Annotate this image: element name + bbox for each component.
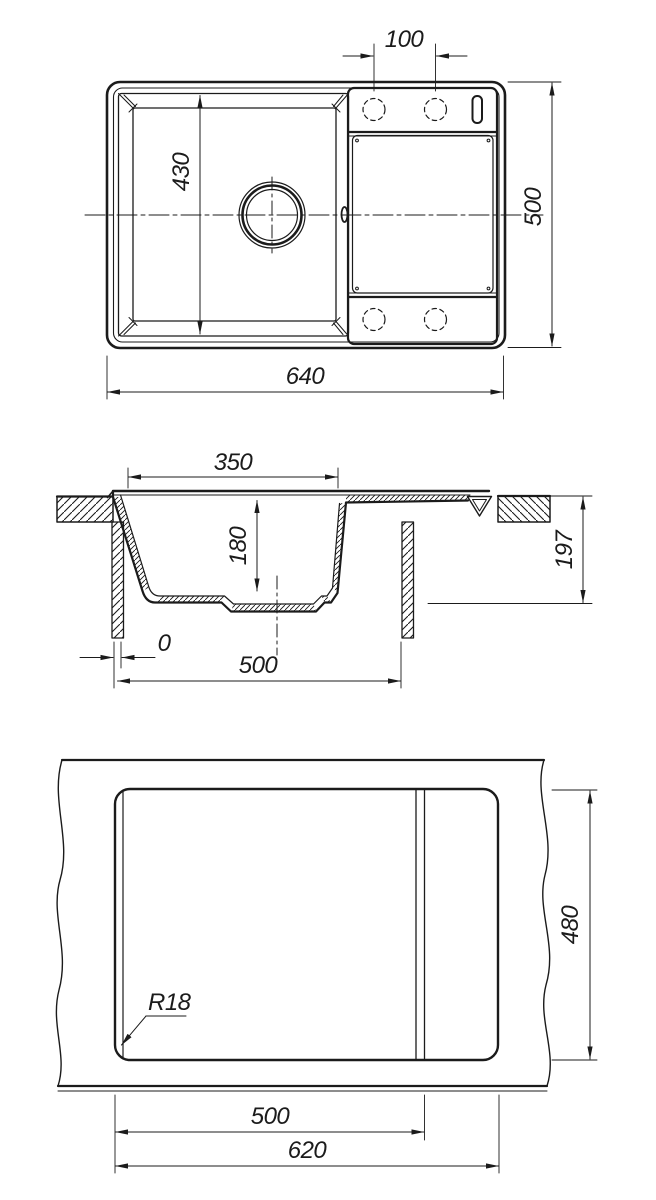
dim-tap-spacing: 100 — [343, 26, 467, 56]
panel-corner-dot — [356, 287, 359, 290]
dim-cutout-width-total-label: 620 — [288, 1137, 328, 1164]
technical-drawing-page: 100 430 500 640 — [0, 0, 656, 1200]
dim-cutout-height: 480 — [552, 790, 597, 1060]
panel-outline — [348, 88, 497, 344]
leader-r18: R18 — [122, 989, 192, 1045]
cabinet-wall-right — [402, 522, 414, 638]
top-view: 100 430 500 640 — [85, 26, 561, 399]
faucet-hole — [425, 99, 447, 121]
drainboard-panel — [348, 88, 497, 344]
faucet-hole — [363, 99, 385, 121]
break-line-right — [541, 760, 550, 1086]
accessory-hole — [425, 309, 447, 331]
slot-hole — [473, 96, 483, 123]
sink-material-hatch — [113, 495, 470, 612]
cutout-view: R18 480 500 620 — [56, 760, 597, 1173]
countertop-left — [57, 497, 113, 523]
countertop-right — [498, 496, 550, 522]
dim-edge-offset-label: 0 — [158, 630, 172, 657]
bowl-outer-surface — [113, 492, 468, 612]
technical-drawing: 100 430 500 640 — [0, 0, 656, 1200]
dim-bowl-depth: 180 — [225, 501, 257, 592]
dim-bowl-opening: 350 — [128, 449, 338, 488]
sink-section-profile — [108, 491, 492, 612]
countertop-panel — [56, 760, 550, 1091]
panel-corner-dot — [356, 139, 359, 142]
dim-overall-height-label: 197 — [551, 529, 578, 570]
cutout-outline — [115, 789, 498, 1060]
dim-bowl-opening-label: 350 — [214, 449, 254, 476]
panel-corner-dot — [487, 139, 490, 142]
dim-edge-offset: 0 — [80, 630, 172, 688]
corner-radius-label: R18 — [148, 989, 192, 1016]
dim-cabinet-width-label: 500 — [239, 652, 279, 679]
dim-overall-depth-label: 500 — [520, 187, 547, 227]
dim-overall-length-label: 640 — [286, 363, 326, 390]
dim-cutout-widths: 500 620 — [115, 1095, 499, 1173]
break-line-left — [56, 760, 63, 1086]
dim-bowl-width-label: 430 — [168, 152, 195, 192]
accessory-hole — [363, 309, 385, 331]
panel-corner-dot — [487, 287, 490, 290]
dim-bowl-depth-label: 180 — [225, 526, 252, 566]
dim-overall-length: 640 — [107, 356, 504, 399]
panel-inset — [353, 136, 494, 294]
section-view: 350 180 197 0 500 — [57, 449, 592, 688]
dim-tap-spacing-label: 100 — [385, 26, 425, 53]
dim-cutout-width-main-label: 500 — [251, 1103, 291, 1130]
cabinet-wall-left — [112, 522, 124, 638]
dim-cutout-height-label: 480 — [557, 905, 584, 945]
